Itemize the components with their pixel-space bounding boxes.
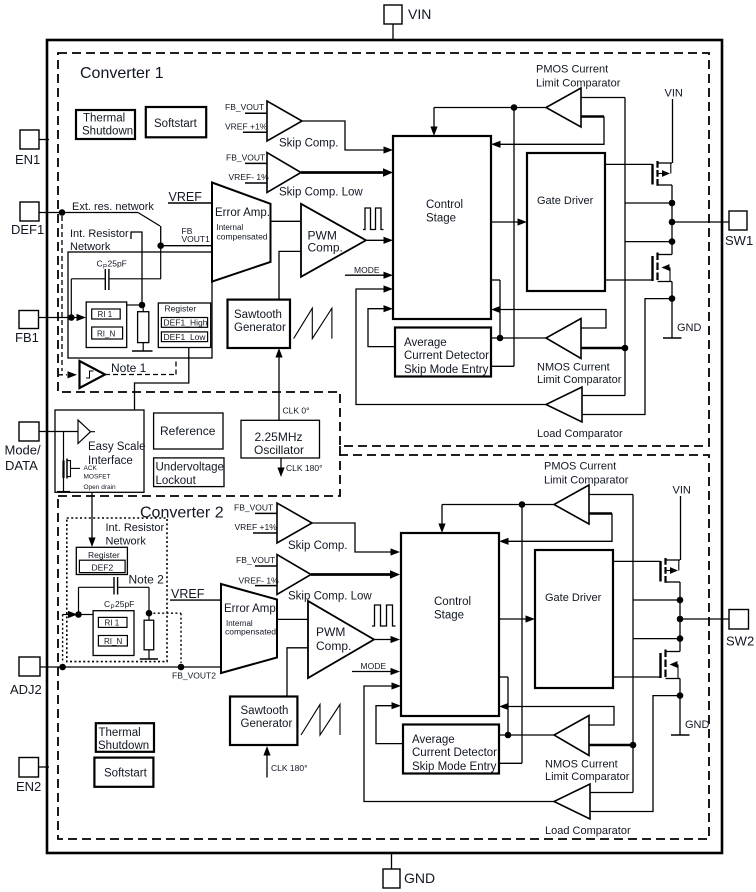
svg-text:VREF- 1%: VREF- 1% <box>229 172 270 182</box>
svg-text:VIN: VIN <box>665 88 683 100</box>
svg-text:Error Amp.: Error Amp. <box>224 603 279 615</box>
svg-text:Skip Mode Entry: Skip Mode Entry <box>412 761 497 773</box>
svg-text:FB_VOUT: FB_VOUT <box>226 153 265 163</box>
svg-text:CLK 0°: CLK 0° <box>283 406 310 416</box>
svg-text:RI 1: RI 1 <box>98 310 113 319</box>
svg-text:Limit Comparator: Limit Comparator <box>544 474 629 486</box>
svg-text:RI_N: RI_N <box>104 637 122 646</box>
svg-text:Oscillator: Oscillator <box>254 443 304 457</box>
svg-text:NMOS Current: NMOS Current <box>537 362 610 374</box>
svg-text:EN1: EN1 <box>15 152 40 167</box>
svg-text:Note 1: Note 1 <box>111 361 147 375</box>
svg-text:Load Comparator: Load Comparator <box>545 825 631 837</box>
svg-text:Load Comparator: Load Comparator <box>537 428 623 440</box>
svg-text:2.25MHz: 2.25MHz <box>255 430 303 444</box>
svg-text:Generator: Generator <box>241 718 293 730</box>
svg-text:Converter 2: Converter 2 <box>140 505 224 522</box>
svg-text:Easy Scale: Easy Scale <box>88 441 146 453</box>
svg-text:Softstart: Softstart <box>104 768 148 780</box>
svg-text:VIN: VIN <box>408 6 431 22</box>
svg-text:Shutdown: Shutdown <box>82 126 133 138</box>
svg-text:Gate Driver: Gate Driver <box>545 592 602 604</box>
svg-text:VREF +1%: VREF +1% <box>225 122 268 132</box>
svg-text:CLK 180°: CLK 180° <box>271 763 307 773</box>
svg-text:Average: Average <box>412 734 455 746</box>
svg-text:Control: Control <box>434 596 471 608</box>
svg-text:Limit Comparator: Limit Comparator <box>545 771 630 783</box>
svg-text:NMOS Current: NMOS Current <box>545 759 618 771</box>
svg-text:SW1: SW1 <box>725 233 753 248</box>
svg-text:DEF1_High: DEF1_High <box>164 318 208 328</box>
svg-text:Note 2: Note 2 <box>129 573 165 587</box>
svg-text:Register: Register <box>165 304 197 314</box>
svg-text:Gate Driver: Gate Driver <box>537 195 594 207</box>
svg-text:Generator: Generator <box>234 322 286 334</box>
svg-text:GND: GND <box>685 719 710 731</box>
svg-text:PMOS Current: PMOS Current <box>544 461 616 473</box>
svg-text:Int. Resistor: Int. Resistor <box>106 522 165 534</box>
svg-text:Skip Comp. Low: Skip Comp. Low <box>279 187 363 199</box>
svg-text:Skip Comp.: Skip Comp. <box>288 540 347 552</box>
svg-text:FB_VOUT: FB_VOUT <box>236 555 275 565</box>
svg-text:Internal: Internal <box>217 223 244 232</box>
svg-text:RI 1: RI 1 <box>105 619 120 628</box>
svg-text:FB1: FB1 <box>15 330 39 345</box>
svg-text:DEF2: DEF2 <box>92 563 114 573</box>
svg-text:Comp.: Comp. <box>308 241 343 255</box>
svg-text:Open drain: Open drain <box>84 484 117 491</box>
svg-text:Register: Register <box>88 550 120 560</box>
svg-text:Thermal: Thermal <box>99 727 141 739</box>
svg-text:Skip Mode Entry: Skip Mode Entry <box>404 364 489 376</box>
svg-text:Comp.: Comp. <box>316 639 351 653</box>
svg-text:MODE: MODE <box>354 265 380 275</box>
svg-text:Current Detector: Current Detector <box>404 350 489 362</box>
svg-text:VREF: VREF <box>171 587 205 601</box>
svg-text:Lockout: Lockout <box>156 475 197 487</box>
svg-text:Ext. res. network: Ext. res. network <box>72 201 154 213</box>
svg-text:Sawtooth: Sawtooth <box>234 309 282 321</box>
svg-text:compensated: compensated <box>217 232 268 242</box>
svg-text:EN2: EN2 <box>16 779 41 794</box>
svg-text:Average: Average <box>404 337 447 349</box>
svg-text:Error Amp.: Error Amp. <box>215 207 270 219</box>
svg-text:RI_N: RI_N <box>97 330 115 339</box>
svg-text:Current Detector: Current Detector <box>412 747 497 759</box>
svg-text:Undervoltage: Undervoltage <box>156 462 224 474</box>
svg-text:ADJ2: ADJ2 <box>10 682 42 697</box>
svg-text:FB_VOUT2: FB_VOUT2 <box>172 671 216 681</box>
svg-text:SW2: SW2 <box>726 634 754 649</box>
svg-text:25pF: 25pF <box>108 259 127 269</box>
svg-text:Stage: Stage <box>434 610 464 622</box>
svg-text:VIN: VIN <box>673 485 691 497</box>
svg-text:MODE: MODE <box>361 661 387 671</box>
svg-text:Network: Network <box>106 536 147 548</box>
svg-text:Limit Comparator: Limit Comparator <box>537 374 622 386</box>
svg-text:Limit Comparator: Limit Comparator <box>536 77 621 89</box>
svg-text:Converter 1: Converter 1 <box>80 65 164 82</box>
svg-text:VREF: VREF <box>169 190 203 204</box>
svg-text:VREF- 1%: VREF- 1% <box>239 576 280 586</box>
svg-text:Thermal: Thermal <box>83 113 125 125</box>
svg-text:Network: Network <box>70 241 111 253</box>
svg-text:FB_VOUT: FB_VOUT <box>234 503 273 513</box>
svg-text:Skip Comp.: Skip Comp. <box>279 138 338 150</box>
svg-text:Int. Resistor: Int. Resistor <box>70 228 129 240</box>
svg-text:C: C <box>97 259 103 269</box>
svg-text:ACK: ACK <box>84 465 98 472</box>
svg-text:Control: Control <box>426 199 463 211</box>
svg-text:Sawtooth: Sawtooth <box>241 705 289 717</box>
svg-text:Mode/: Mode/ <box>5 443 42 458</box>
svg-text:Shutdown: Shutdown <box>98 740 149 752</box>
svg-text:FB_VOUT: FB_VOUT <box>225 102 264 112</box>
svg-text:Stage: Stage <box>426 213 456 225</box>
svg-text:GND: GND <box>677 322 702 334</box>
svg-text:MOSFET: MOSFET <box>84 474 111 481</box>
svg-text:compensated: compensated <box>225 627 276 637</box>
svg-text:GND: GND <box>404 870 435 886</box>
svg-text:VOUT1: VOUT1 <box>182 234 211 244</box>
svg-text:CLK 180°: CLK 180° <box>286 463 322 473</box>
svg-text:DEF1_Low: DEF1_Low <box>164 332 207 342</box>
svg-text:Softstart: Softstart <box>154 118 198 130</box>
svg-text:PWM: PWM <box>316 625 345 639</box>
svg-text:VREF +1%: VREF +1% <box>235 522 278 532</box>
svg-text:Skip Comp. Low: Skip Comp. Low <box>288 591 372 603</box>
svg-text:25pF: 25pF <box>115 599 134 609</box>
svg-text:PMOS Current: PMOS Current <box>536 64 608 76</box>
svg-text:DATA: DATA <box>5 458 38 473</box>
svg-text:Reference: Reference <box>160 424 216 438</box>
svg-text:C: C <box>104 599 110 609</box>
svg-text:DEF1: DEF1 <box>11 222 44 237</box>
